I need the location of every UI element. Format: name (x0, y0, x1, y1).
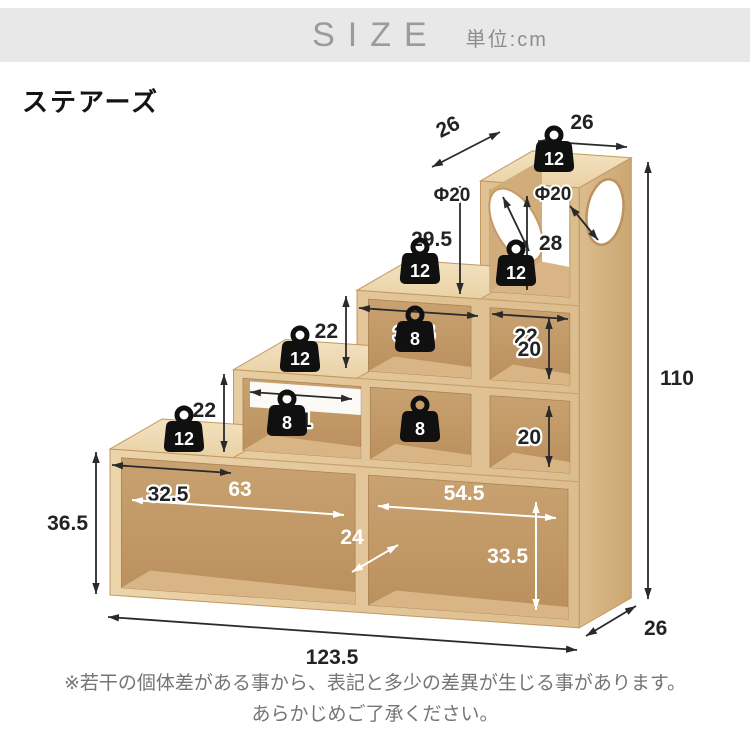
svg-text:20: 20 (518, 426, 541, 449)
dim-left-height: 36.5 (47, 452, 96, 594)
svg-text:22: 22 (193, 399, 216, 422)
svg-text:Φ20: Φ20 (434, 185, 471, 206)
svg-text:54.5: 54.5 (444, 482, 485, 505)
svg-text:123.5: 123.5 (306, 646, 359, 669)
svg-text:26: 26 (432, 112, 463, 143)
svg-text:12: 12 (544, 149, 564, 169)
svg-text:8: 8 (415, 419, 425, 439)
svg-text:36.5: 36.5 (47, 512, 88, 535)
dim-column-depth: 26 (432, 112, 500, 167)
weight-badge-column-top: 12 (534, 128, 574, 172)
disclaimer-line-2: あらかじめご了承ください。 (0, 699, 750, 730)
svg-text:12: 12 (290, 349, 310, 369)
svg-text:12: 12 (174, 429, 194, 449)
svg-text:26: 26 (570, 111, 593, 134)
dim-total-width: 123.5 (108, 617, 577, 669)
svg-text:22: 22 (315, 320, 338, 343)
svg-text:26: 26 (644, 617, 667, 640)
svg-text:110: 110 (660, 367, 694, 390)
svg-text:28: 28 (539, 232, 563, 255)
disclaimer-note: ※若干の個体差がある事から、表記と多少の差異が生じる事があります。 あらかじめご… (0, 668, 750, 731)
step-shelf-illustration (110, 151, 631, 628)
size-diagram: 26 26 29.5 28 Φ20 Φ20 32.5 22 (0, 0, 750, 750)
svg-text:Φ20: Φ20 (535, 184, 572, 205)
svg-text:12: 12 (410, 261, 430, 281)
svg-text:63: 63 (228, 478, 251, 501)
disclaimer-line-1: ※若干の個体差がある事から、表記と多少の差異が生じる事があります。 (0, 668, 750, 699)
svg-text:8: 8 (282, 413, 292, 433)
svg-text:33.5: 33.5 (487, 545, 528, 568)
svg-text:24: 24 (340, 526, 364, 549)
dim-total-height: 110 (648, 162, 694, 599)
svg-text:20: 20 (518, 338, 541, 361)
svg-text:12: 12 (506, 263, 526, 283)
svg-text:8: 8 (410, 329, 420, 349)
